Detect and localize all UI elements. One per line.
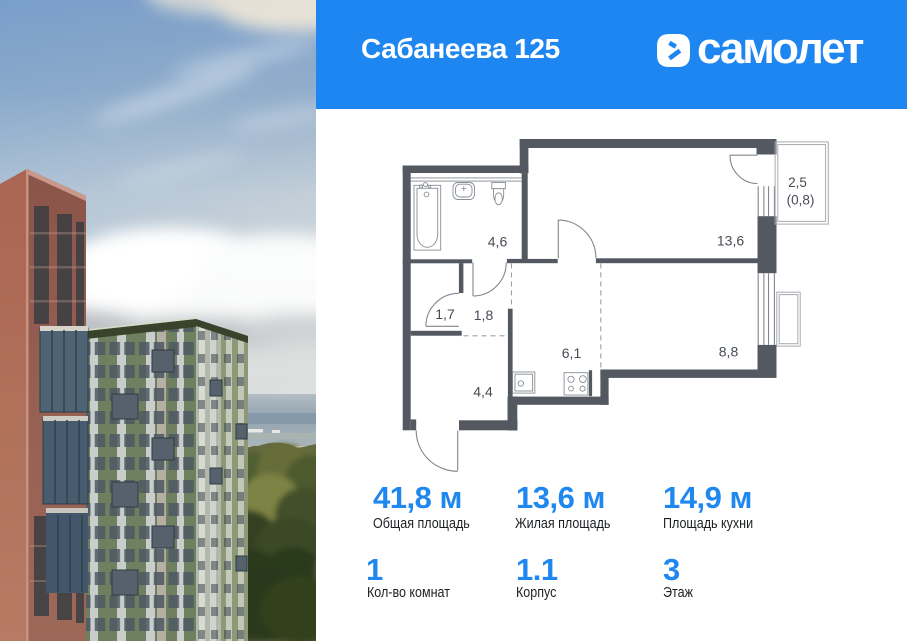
svg-text:1,8: 1,8 xyxy=(474,307,494,323)
svg-text:4,4: 4,4 xyxy=(473,384,493,400)
svg-text:6,1: 6,1 xyxy=(562,345,582,361)
svg-text:1,7: 1,7 xyxy=(435,306,455,322)
svg-text:2,5: 2,5 xyxy=(788,175,807,190)
svg-text:(0,8): (0,8) xyxy=(787,192,815,207)
svg-text:8,8: 8,8 xyxy=(719,344,739,360)
svg-text:4,6: 4,6 xyxy=(488,234,508,250)
svg-text:13,6: 13,6 xyxy=(717,233,744,249)
